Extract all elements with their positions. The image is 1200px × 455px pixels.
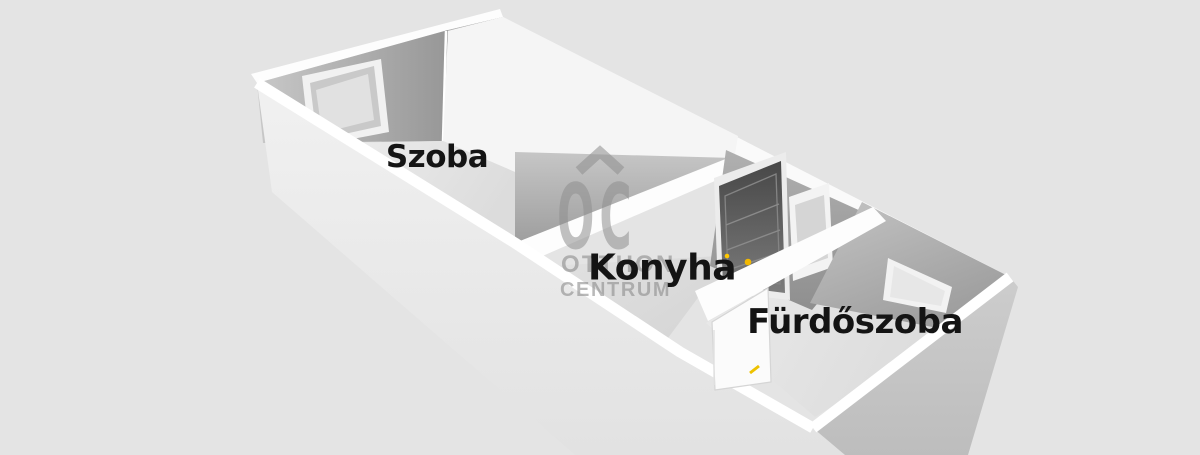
floorplan-render: OC OTTHON CENTRUM Szoba Konyha Fürdőszob… — [0, 0, 1200, 455]
entry-door-knob-icon — [745, 259, 752, 266]
room-label-szoba: Szoba — [386, 139, 488, 175]
room-label-konyha: Konyha — [588, 248, 736, 289]
room-label-furdoszoba: Fürdőszoba — [747, 302, 963, 342]
floorplan-svg: OC — [0, 0, 1200, 455]
